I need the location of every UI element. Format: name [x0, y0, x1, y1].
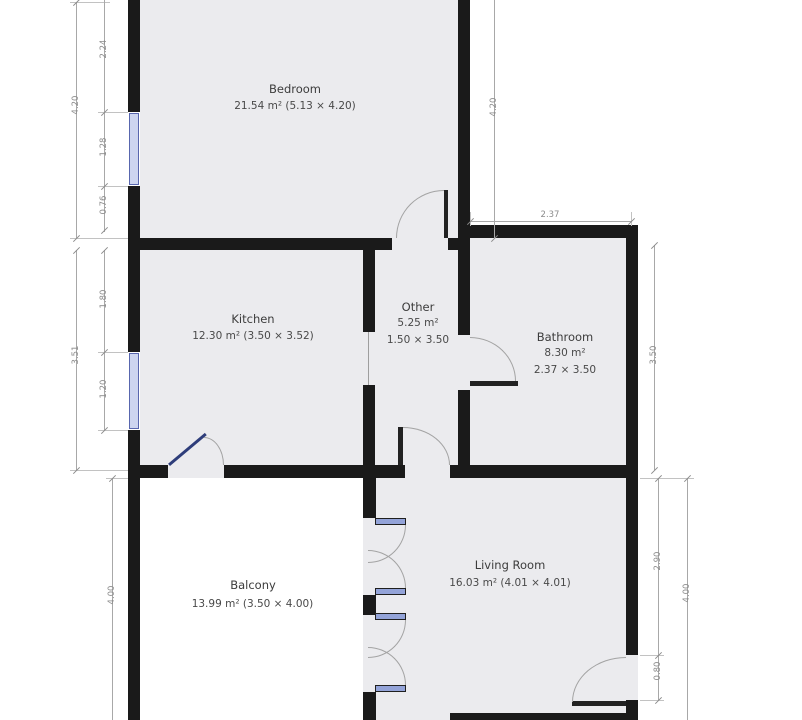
other-area: 5.25 m²	[378, 317, 458, 329]
kitchen-corridor-wall	[363, 250, 375, 332]
other-dims: 1.50 × 3.50	[373, 334, 463, 346]
balcony-door-leaf	[375, 613, 406, 620]
doorway-fill	[392, 238, 448, 250]
kitchen-window	[129, 353, 139, 429]
kitchen-area: 12.30 m² (3.50 × 3.52)	[153, 330, 353, 342]
middle-wall	[375, 465, 405, 478]
passage-line	[368, 332, 369, 385]
living-room-area: 16.03 m² (4.01 × 4.01)	[405, 577, 615, 589]
dim-label: 4.20	[489, 90, 499, 124]
corridor-bathroom-wall	[458, 250, 470, 335]
doorway-fill	[626, 655, 638, 700]
dim-label: 3.50	[649, 338, 659, 372]
dim-label: 2.24	[99, 32, 109, 66]
bathroom-area: 8.30 m²	[505, 347, 625, 359]
balcony-label: Balcony	[178, 578, 328, 592]
bathroom-label: Bathroom	[505, 330, 625, 344]
bedroom-bottom-wall	[128, 238, 392, 250]
dim-label: 1.80	[99, 282, 109, 316]
doorway-fill	[405, 465, 450, 478]
other-label: Other	[378, 300, 458, 314]
bedroom-area: 21.54 m² (5.13 × 4.20)	[195, 100, 395, 112]
extension-line	[106, 478, 128, 479]
dim-label: 4.20	[71, 88, 81, 122]
dim-label: 4.00	[682, 576, 692, 610]
dim-label: 0.80	[653, 654, 663, 688]
exterior-wall-left	[128, 186, 140, 352]
bedroom-door-leaf	[444, 190, 448, 238]
extension-line	[70, 470, 128, 471]
middle-wall	[128, 465, 168, 478]
balcony-door-leaf	[375, 518, 406, 525]
dim-label: 4.00	[107, 578, 117, 612]
bathroom-top-wall	[458, 225, 638, 238]
balcony-living-wall	[363, 692, 376, 720]
floor-plan: 4.20 2.24 1.28 0.76 3.51 1.80 1.20 4.00 …	[0, 0, 802, 720]
exterior-wall-left	[128, 0, 140, 112]
kitchen-floor	[140, 250, 363, 465]
extension-line	[640, 700, 664, 701]
bathroom-door-leaf	[470, 381, 518, 386]
balcony-door-leaf	[375, 685, 406, 692]
living-bottom-wall	[450, 713, 638, 720]
living-room-label: Living Room	[430, 558, 590, 572]
bedroom-window	[129, 113, 139, 185]
dim-tick	[101, 227, 108, 234]
bathroom-dims: 2.37 × 3.50	[505, 364, 625, 376]
exterior-wall-right	[626, 238, 638, 655]
dim-tick	[651, 467, 658, 474]
dim-label: 2.37	[530, 210, 570, 220]
bedroom-right-wall	[458, 0, 470, 250]
dim-label: 3.51	[71, 338, 81, 372]
middle-wall	[224, 465, 363, 478]
balcony-living-wall	[363, 595, 376, 615]
dim-line	[470, 221, 632, 222]
dim-label: 1.20	[99, 372, 109, 406]
kitchen-label: Kitchen	[178, 312, 328, 326]
kitchen-corridor-wall	[363, 385, 375, 478]
balcony-door-leaf	[375, 588, 406, 595]
dim-label: 1.28	[99, 130, 109, 164]
balcony-living-wall	[363, 478, 376, 518]
doorway-fill	[168, 465, 224, 478]
middle-wall	[450, 465, 638, 478]
balcony-area: 13.99 m² (3.50 × 4.00)	[150, 598, 355, 610]
bedroom-label: Bedroom	[220, 82, 370, 96]
dim-label: 0.76	[99, 188, 109, 222]
dim-label: 2.90	[653, 544, 663, 578]
extension-line	[70, 238, 128, 239]
